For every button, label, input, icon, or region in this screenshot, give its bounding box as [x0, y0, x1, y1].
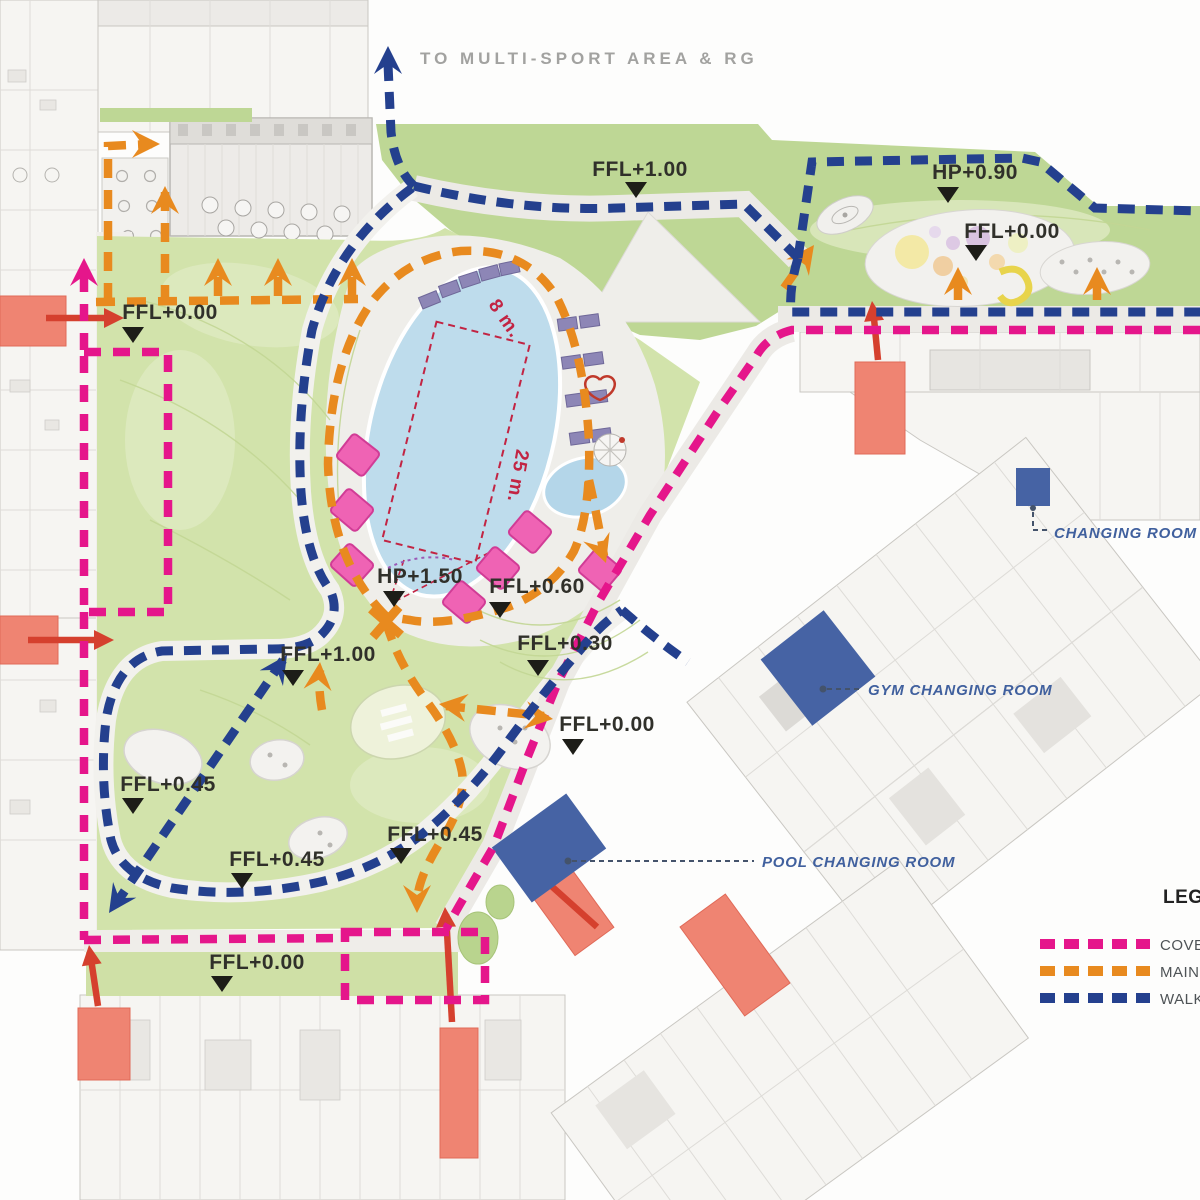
- level-label: FFL+0.00: [122, 301, 218, 324]
- level-label: FFL+1.00: [280, 643, 376, 666]
- level-label: FFL+0.00: [964, 220, 1060, 243]
- level-label: HP+0.90: [932, 161, 1018, 184]
- legend-label-walkway: WALK: [1160, 991, 1200, 1008]
- level-label: FFL+0.45: [120, 773, 216, 796]
- site-plan-svg: TO MULTI-SPORT AREA & RG FFL+1.00 HP+0.9…: [0, 0, 1200, 1200]
- site-plan: TO MULTI-SPORT AREA & RG FFL+1.00 HP+0.9…: [0, 0, 1200, 1200]
- level-label: FFL+0.45: [387, 823, 483, 846]
- level-label: FFL+0.60: [489, 575, 585, 598]
- wheel-icon: [594, 434, 626, 466]
- building-bottom-band: [80, 995, 565, 1200]
- gym-changing-room-annotation: GYM CHANGING ROOM: [868, 682, 1052, 699]
- changing-room-annotation: CHANGING ROOM: [1054, 525, 1197, 542]
- legend-title: LEGE: [1163, 887, 1200, 908]
- pool-changing-room-annotation: POOL CHANGING ROOM: [762, 854, 955, 871]
- level-label: FFL+0.00: [209, 951, 305, 974]
- level-label: FFL+0.30: [517, 632, 613, 655]
- level-label: FFL+0.00: [559, 713, 655, 736]
- legend-label-covered: COVE: [1160, 937, 1200, 954]
- building-restaurant: [170, 118, 372, 242]
- legend-label-main: MAIN: [1160, 964, 1200, 981]
- changing-room-block-small: [1016, 468, 1050, 506]
- destination-label: TO MULTI-SPORT AREA & RG: [420, 49, 758, 68]
- level-label: FFL+0.45: [229, 848, 325, 871]
- level-label: FFL+1.00: [592, 158, 688, 181]
- level-label: HP+1.50: [377, 565, 463, 588]
